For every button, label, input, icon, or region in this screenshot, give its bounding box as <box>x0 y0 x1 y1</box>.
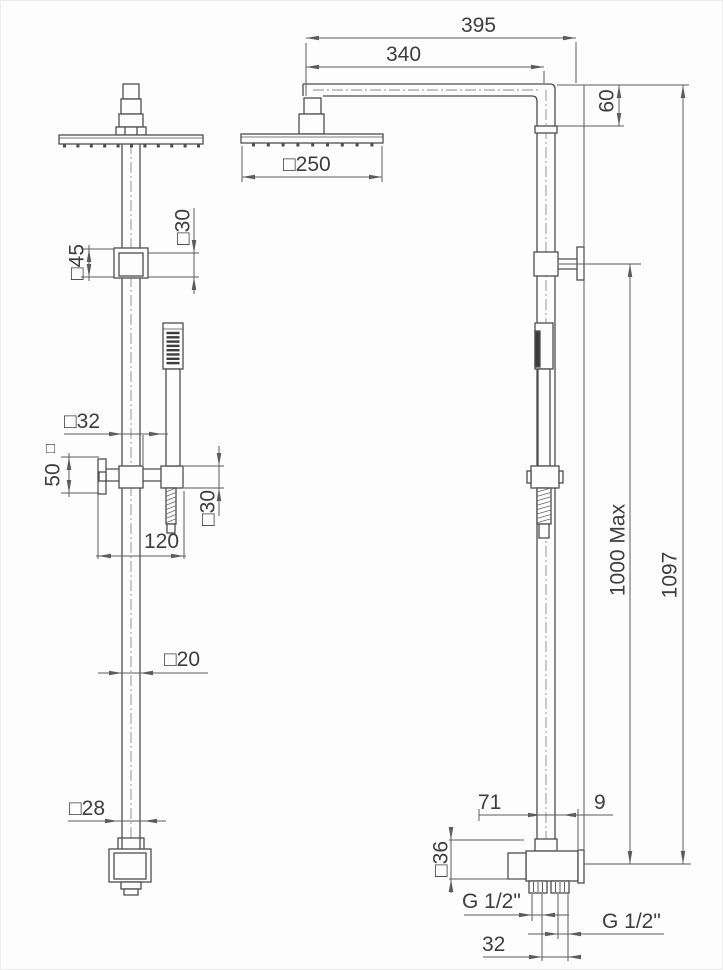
elbow-collar <box>535 126 557 133</box>
dim-ceiling-bracket: □45 <box>67 244 88 280</box>
dim-valve-right: 9 <box>594 792 606 813</box>
dim-arm-height: 60 <box>597 89 618 112</box>
dim-valve-section: □36 <box>431 841 452 877</box>
dim-knob-height: 50 <box>43 463 64 486</box>
side-shower-head <box>241 134 383 143</box>
dim-total-height: 1097 <box>660 552 681 599</box>
dim-valve-left: 71 <box>478 792 501 813</box>
side-view <box>241 84 584 893</box>
technical-drawing-page: 395 340 □250 □32 120 □20 □28 71 9 G 1/2"… <box>0 0 723 970</box>
shower-column-drawing-canvas <box>1 1 723 970</box>
side-hand-shower <box>527 323 563 538</box>
dim-ceiling-bracket-depth: □30 <box>173 209 194 245</box>
front-head-connector <box>116 84 146 135</box>
dim-slider-length: 120 <box>144 531 179 552</box>
square-symbol-knob: □ <box>46 441 55 456</box>
dim-slider-offset: □32 <box>64 411 100 432</box>
dim-vertical-lines <box>69 42 683 961</box>
dim-head-size: □250 <box>283 154 331 175</box>
base-wall-block <box>109 838 151 895</box>
side-head-connector <box>299 98 324 134</box>
dim-holder-height: □30 <box>198 490 219 526</box>
dim-arm-length: 340 <box>386 44 421 65</box>
valve-body <box>508 839 584 893</box>
ceiling-bracket <box>114 248 148 278</box>
dim-base-section: □28 <box>69 798 105 819</box>
side-head-nozzles <box>252 144 373 147</box>
dim-thread-right: G 1/2" <box>602 911 661 932</box>
front-shower-head <box>59 135 203 144</box>
dim-thread-left: G 1/2" <box>462 891 521 912</box>
front-head-nozzles <box>63 145 200 148</box>
dim-thread-spacing: 32 <box>482 934 505 955</box>
front-view <box>59 84 203 895</box>
dim-pipe-section: □20 <box>164 649 200 670</box>
dim-overall-width: 395 <box>461 15 496 36</box>
dim-riser-height: 1000 Max <box>608 504 629 596</box>
outlet-thread-marks <box>534 882 565 892</box>
